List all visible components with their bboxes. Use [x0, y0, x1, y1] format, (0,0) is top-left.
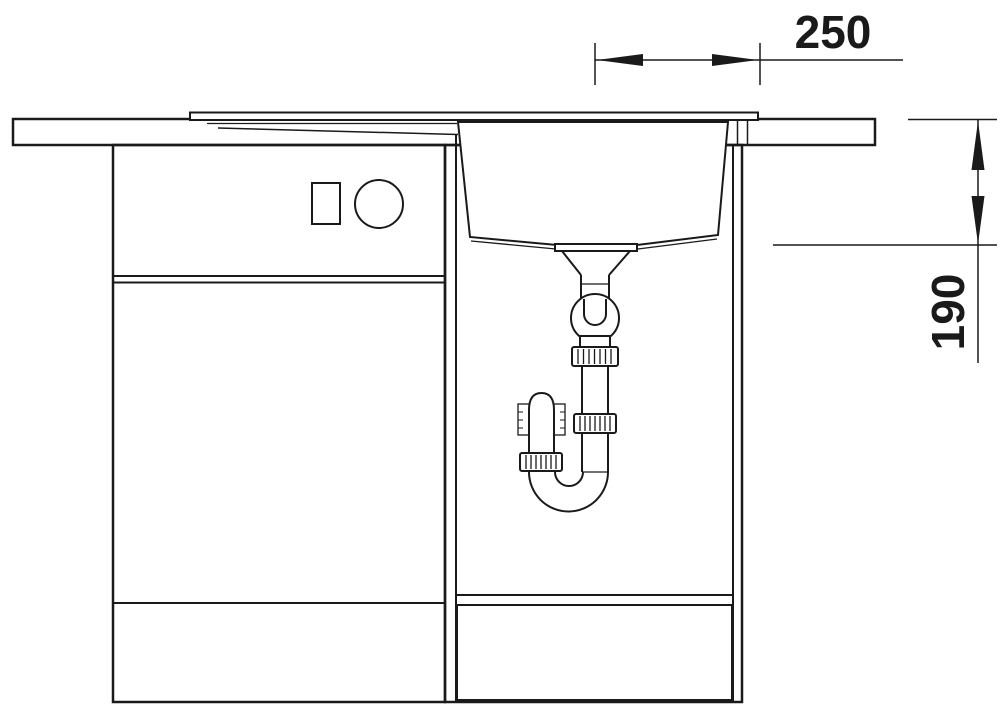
drain-taper-left: [562, 251, 581, 275]
front-panel-rect-detail: [312, 183, 340, 224]
slip-nut-3-ribs: [526, 455, 556, 469]
dim250-arrow-left: [597, 54, 643, 66]
left-cabinet-body: [113, 145, 445, 702]
u-bend-outer-arc: [529, 472, 608, 512]
elbow-dome: [529, 393, 554, 453]
slip-nut-2-ribs: [580, 416, 610, 431]
slip-nut-1: [572, 347, 618, 366]
dim250-label: 250: [795, 6, 872, 58]
basin-profile: [458, 122, 728, 245]
drawing-canvas: 250 190: [0, 0, 1000, 711]
rim-profile: [190, 113, 758, 121]
slip-nut-2: [574, 414, 616, 433]
dim250-arrow-right: [712, 54, 758, 66]
dimension-190: 190: [773, 120, 997, 364]
u-bend-inner-arc: [555, 472, 583, 486]
left-cabinet: [113, 145, 445, 702]
slip-nut-1-ribs: [578, 349, 611, 364]
drain-taper-right: [609, 251, 630, 275]
dim190-label: 190: [922, 274, 974, 351]
sink-basin: [458, 122, 728, 249]
slip-nut-3: [520, 453, 562, 471]
sink-cabinet-plinth-panel: [457, 605, 732, 700]
ball-joint: [571, 294, 619, 342]
elbow-union: [518, 393, 565, 453]
dim190-arrow-down: [972, 196, 985, 244]
dimension-250: 250: [595, 6, 903, 85]
drain-flange: [555, 244, 637, 251]
dim190-arrow-up: [972, 121, 985, 170]
drain-trap: [518, 244, 637, 512]
sink-section-drawing: 250 190: [0, 0, 1000, 711]
front-panel-circle-detail: [355, 180, 403, 228]
